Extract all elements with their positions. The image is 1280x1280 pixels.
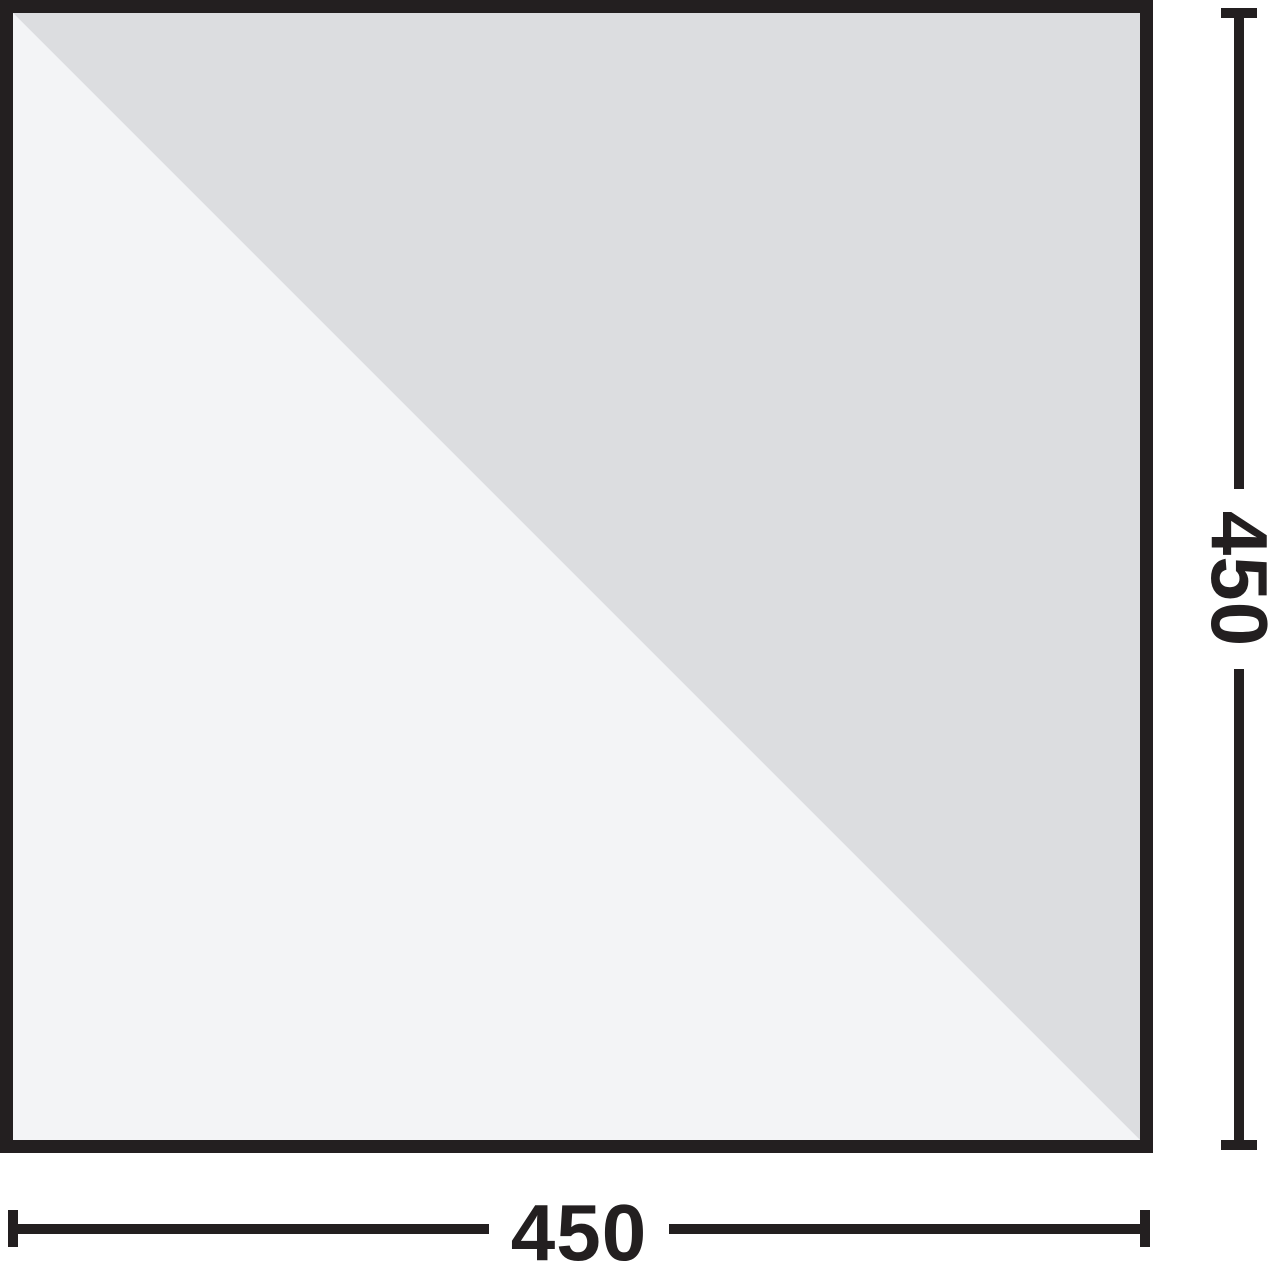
width-dimension: 450	[8, 1210, 1150, 1247]
height-dimension: 450	[1221, 8, 1257, 1150]
square-panel	[0, 0, 1153, 1153]
diagonal-split-graphic	[13, 13, 1140, 1140]
dimension-line-right-segment	[669, 1224, 1140, 1234]
diagram-canvas: 450 450	[0, 0, 1280, 1280]
dimension-end-cap-left	[8, 1210, 18, 1247]
height-value-text: 450	[1199, 511, 1279, 647]
dimension-end-cap-bottom	[1221, 1140, 1257, 1150]
dimension-end-cap-top	[1221, 8, 1257, 18]
dimension-line-lower-segment	[1234, 669, 1244, 1140]
dimension-line-upper-segment	[1234, 18, 1244, 489]
width-dimension-label: 450	[489, 1185, 669, 1273]
height-dimension-label: 450	[1221, 489, 1257, 669]
dimension-end-cap-right	[1140, 1210, 1150, 1247]
dimension-line-left-segment	[18, 1224, 489, 1234]
